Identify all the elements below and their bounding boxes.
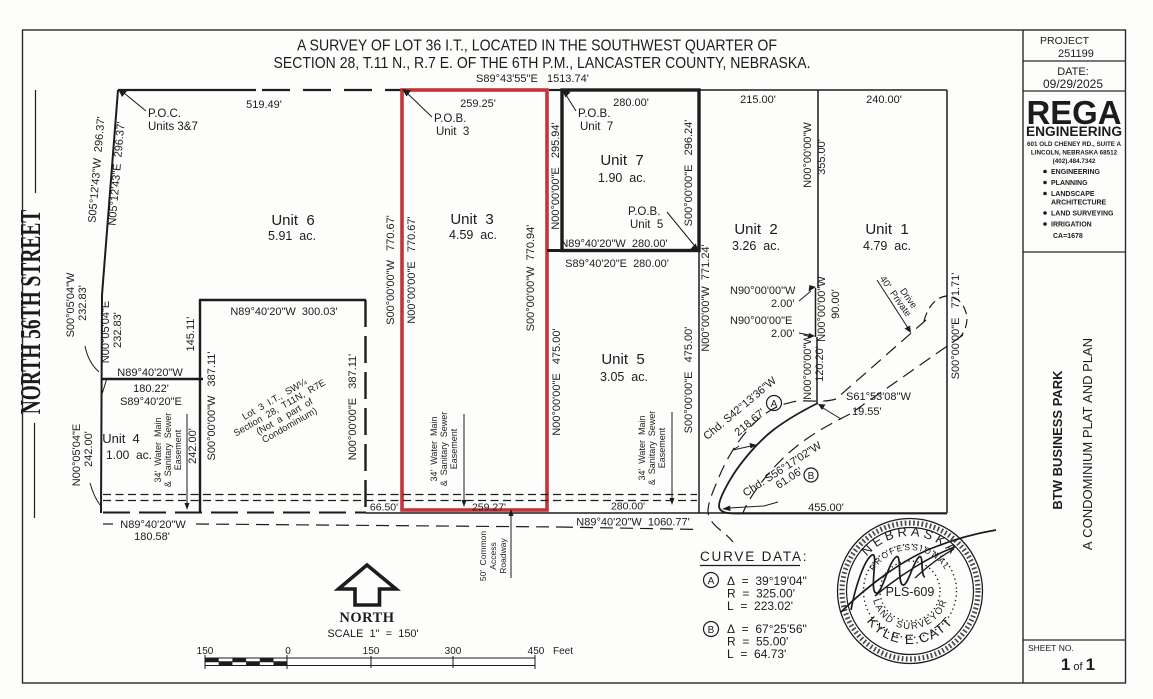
svg-text:ENGINEERING: ENGINEERING xyxy=(1051,169,1101,176)
svg-text:ENGINEERING: ENGINEERING xyxy=(1026,124,1122,139)
svg-text:5.91 ac.: 5.91 ac. xyxy=(268,229,316,243)
svg-text:& Sanitary Sewer: & Sanitary Sewer xyxy=(439,412,449,487)
svg-text:N00°00'00"W: N00°00'00"W xyxy=(802,334,814,400)
svg-text:145.11': 145.11' xyxy=(185,317,197,352)
svg-text:66.50': 66.50' xyxy=(370,502,398,514)
svg-text:N00°05'04"E: N00°05'04"E xyxy=(71,424,83,486)
svg-text:19.55': 19.55' xyxy=(852,406,882,418)
svg-text:P.O.B.: P.O.B. xyxy=(628,206,660,218)
svg-text:90.00': 90.00' xyxy=(830,289,842,319)
svg-text:4.59 ac.: 4.59 ac. xyxy=(449,228,497,242)
svg-text:180.22': 180.22' xyxy=(133,383,169,395)
svg-text:L = 223.02': L = 223.02' xyxy=(727,599,793,613)
svg-text:240.00': 240.00' xyxy=(866,94,902,106)
svg-text:Roadway: Roadway xyxy=(498,538,508,574)
svg-text:N89°40'20"W: N89°40'20"W xyxy=(117,367,183,379)
svg-text:N89°40'20"W 300.03': N89°40'20"W 300.03' xyxy=(230,306,337,318)
svg-text:259.27': 259.27' xyxy=(472,502,506,514)
svg-text:P.O.C.: P.O.C. xyxy=(148,108,181,120)
svg-text:601 OLD CHENEY RD., SUITE A: 601 OLD CHENEY RD., SUITE A xyxy=(1027,141,1122,148)
svg-text:SECTION 28, T.11 N., R.7 E. OF: SECTION 28, T.11 N., R.7 E. OF THE 6TH P… xyxy=(274,55,811,72)
svg-text:355.00': 355.00' xyxy=(816,139,828,175)
svg-text:S89°40'20"E: S89°40'20"E xyxy=(120,396,182,408)
svg-text:215.00': 215.00' xyxy=(740,94,776,106)
svg-text:Unit 7: Unit 7 xyxy=(600,152,643,169)
svg-text:34' Water Main: 34' Water Main xyxy=(153,418,163,483)
svg-text:120.20': 120.20' xyxy=(814,346,826,382)
svg-text:S00°00'00"W 770.67': S00°00'00"W 770.67' xyxy=(385,215,397,325)
svg-text:PLS-609: PLS-609 xyxy=(886,585,935,599)
svg-text:Unit 5: Unit 5 xyxy=(601,351,644,368)
svg-text:S00°00'00"W 387.11': S00°00'00"W 387.11' xyxy=(206,352,218,461)
svg-text:LAND SURVEYING: LAND SURVEYING xyxy=(1051,211,1114,218)
svg-text:Unit 5: Unit 5 xyxy=(630,219,663,231)
svg-text:251199: 251199 xyxy=(1058,48,1094,60)
svg-text:S89°40'20"E 280.00': S89°40'20"E 280.00' xyxy=(565,258,669,270)
svg-text:& Sanitary Sewer: & Sanitary Sewer xyxy=(647,411,657,486)
svg-text:N00°05'04"E: N00°05'04"E xyxy=(100,301,112,363)
svg-text:1.00 ac.: 1.00 ac. xyxy=(106,448,152,462)
svg-text:Unit 7: Unit 7 xyxy=(580,121,613,133)
svg-text:(402).484.7342: (402).484.7342 xyxy=(1053,158,1096,165)
svg-text:232.83': 232.83' xyxy=(77,285,89,321)
svg-text:A: A xyxy=(771,399,778,410)
svg-text:N00°00'00"E 770.67': N00°00'00"E 770.67' xyxy=(406,216,418,323)
svg-text:S89°43'55"E 1513.74': S89°43'55"E 1513.74' xyxy=(476,73,589,85)
svg-text:300: 300 xyxy=(445,646,462,657)
svg-text:A SURVEY OF LOT 36 I.T., LOCAT: A SURVEY OF LOT 36 I.T., LOCATED IN THE … xyxy=(297,38,777,55)
svg-text:N89°40'20"W: N89°40'20"W xyxy=(120,519,186,531)
svg-text:S00°00'00"E 771.71': S00°00'00"E 771.71' xyxy=(950,273,962,380)
svg-text:N00°00'00"E 387.11': N00°00'00"E 387.11' xyxy=(347,354,359,461)
svg-text:NORTH 56TH STREET: NORTH 56TH STREET xyxy=(16,210,47,414)
svg-text:PROJECT: PROJECT xyxy=(1040,35,1090,47)
svg-text:N00°00'00"E 475.00': N00°00'00"E 475.00' xyxy=(551,328,563,435)
svg-text:S00°05'04"W: S00°05'04"W xyxy=(65,272,77,337)
svg-text:N89°40'20"W 280.00': N89°40'20"W 280.00' xyxy=(560,238,667,250)
svg-text:519.49': 519.49' xyxy=(246,99,282,111)
svg-text:Unit 3: Unit 3 xyxy=(450,211,493,228)
svg-text:455.00': 455.00' xyxy=(808,502,844,514)
svg-text:LANDSCAPE: LANDSCAPE xyxy=(1051,191,1095,198)
svg-text:Easement: Easement xyxy=(173,429,183,470)
svg-text:1.90 ac.: 1.90 ac. xyxy=(598,171,646,185)
svg-text:S00°00'00"E 296.24': S00°00'00"E 296.24' xyxy=(683,120,695,227)
svg-text:P.O.B.: P.O.B. xyxy=(578,108,610,120)
svg-text:242.00': 242.00' xyxy=(83,431,95,467)
svg-text:ARCHITECTURE: ARCHITECTURE xyxy=(1051,200,1107,207)
svg-text:CA=1678: CA=1678 xyxy=(1053,233,1083,240)
svg-text:09/29/2025: 09/29/2025 xyxy=(1043,77,1103,91)
svg-text:3.05 ac.: 3.05 ac. xyxy=(600,370,648,384)
svg-text:PLANNING: PLANNING xyxy=(1051,180,1088,187)
svg-text:34' Water Main: 34' Water Main xyxy=(429,417,439,482)
svg-text:Unit 6: Unit 6 xyxy=(271,212,314,229)
svg-text:280.00': 280.00' xyxy=(611,501,645,513)
svg-text:LINCOLN, NEBRASKA 68512: LINCOLN, NEBRASKA 68512 xyxy=(1031,150,1118,157)
svg-text:Easement: Easement xyxy=(657,427,667,468)
svg-text:4.79 ac.: 4.79 ac. xyxy=(863,239,911,253)
svg-text:N00°00'00"E 295.94': N00°00'00"E 295.94' xyxy=(550,122,562,229)
svg-text:0: 0 xyxy=(285,646,291,657)
svg-text:SCALE 1" = 150': SCALE 1" = 150' xyxy=(327,628,418,640)
svg-text:232.83': 232.83' xyxy=(112,312,124,348)
svg-text:Unit 2: Unit 2 xyxy=(734,221,777,238)
svg-text:Units 3&7: Units 3&7 xyxy=(148,121,198,133)
svg-text:N00°00'00"W 771.24': N00°00'00"W 771.24' xyxy=(700,244,712,351)
svg-text:P.O.B.: P.O.B. xyxy=(434,113,466,125)
svg-text:180.58': 180.58' xyxy=(134,531,170,543)
svg-text:S00°00'00"W 770.94': S00°00'00"W 770.94' xyxy=(525,225,537,332)
svg-text:150: 150 xyxy=(363,646,380,657)
svg-text:Easement: Easement xyxy=(449,428,459,469)
svg-text:Feet: Feet xyxy=(553,646,573,657)
svg-text:N89°40'20"W 1060.77': N89°40'20"W 1060.77' xyxy=(576,517,689,529)
svg-text:3.26 ac.: 3.26 ac. xyxy=(732,239,780,253)
svg-text:450: 450 xyxy=(528,646,545,657)
svg-text:Unit 3: Unit 3 xyxy=(436,126,469,138)
svg-text:IRRIGATION: IRRIGATION xyxy=(1051,222,1092,229)
svg-text:N90°00'00"W: N90°00'00"W xyxy=(730,285,796,297)
svg-text:Unit 1: Unit 1 xyxy=(865,221,908,238)
svg-text:280.00': 280.00' xyxy=(613,97,649,109)
svg-text:L = 64.73': L = 64.73' xyxy=(727,647,786,661)
svg-text:S61°53'08"W: S61°53'08"W xyxy=(846,391,911,403)
svg-text:2.00': 2.00' xyxy=(771,328,795,340)
svg-text:B: B xyxy=(708,625,715,636)
svg-text:& Sanitary Sewer: & Sanitary Sewer xyxy=(163,413,173,488)
svg-text:Access: Access xyxy=(488,542,498,569)
svg-text:S00°00'00"E 475.00': S00°00'00"E 475.00' xyxy=(683,327,695,434)
svg-text:A: A xyxy=(708,576,715,587)
svg-text:NORTH: NORTH xyxy=(339,610,394,626)
svg-text:2.00': 2.00' xyxy=(771,298,795,310)
svg-text:34' Water Main: 34' Water Main xyxy=(637,416,647,481)
svg-text:B: B xyxy=(808,471,815,482)
svg-text:SHEET NO.: SHEET NO. xyxy=(1028,643,1074,653)
svg-text:N00°00'00"W: N00°00'00"W xyxy=(816,276,828,342)
svg-text:242.00': 242.00' xyxy=(187,428,199,464)
svg-text:50' Common: 50' Common xyxy=(478,531,488,582)
svg-text:CURVE DATA:: CURVE DATA: xyxy=(700,549,808,564)
svg-text:N00°00'00"W: N00°00'00"W xyxy=(802,122,814,188)
svg-text:N90°00'00"E: N90°00'00"E xyxy=(730,315,792,327)
svg-text:BTW BUSINESS PARK: BTW BUSINESS PARK xyxy=(1050,370,1065,510)
svg-text:Unit 4: Unit 4 xyxy=(102,431,140,446)
svg-text:259.25': 259.25' xyxy=(460,98,496,110)
svg-text:A CONDOMINIUM PLAT AND PLAN: A CONDOMINIUM PLAT AND PLAN xyxy=(1080,338,1095,550)
